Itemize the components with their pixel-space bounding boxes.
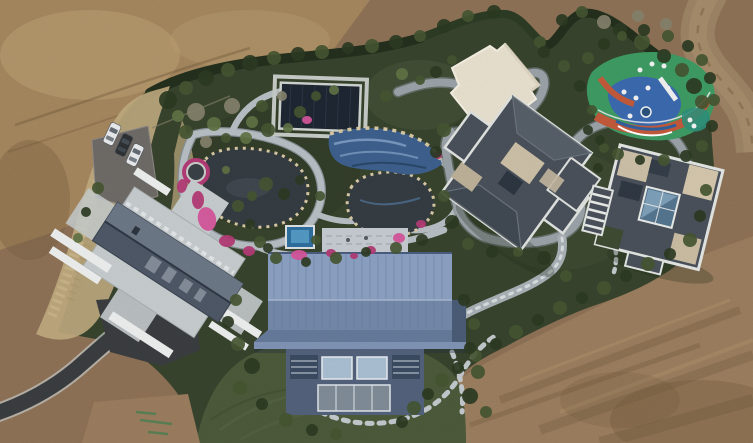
estate-aerial-scene bbox=[0, 0, 753, 443]
aerial-photo bbox=[0, 0, 753, 443]
photo-grain-overlay bbox=[0, 0, 753, 443]
